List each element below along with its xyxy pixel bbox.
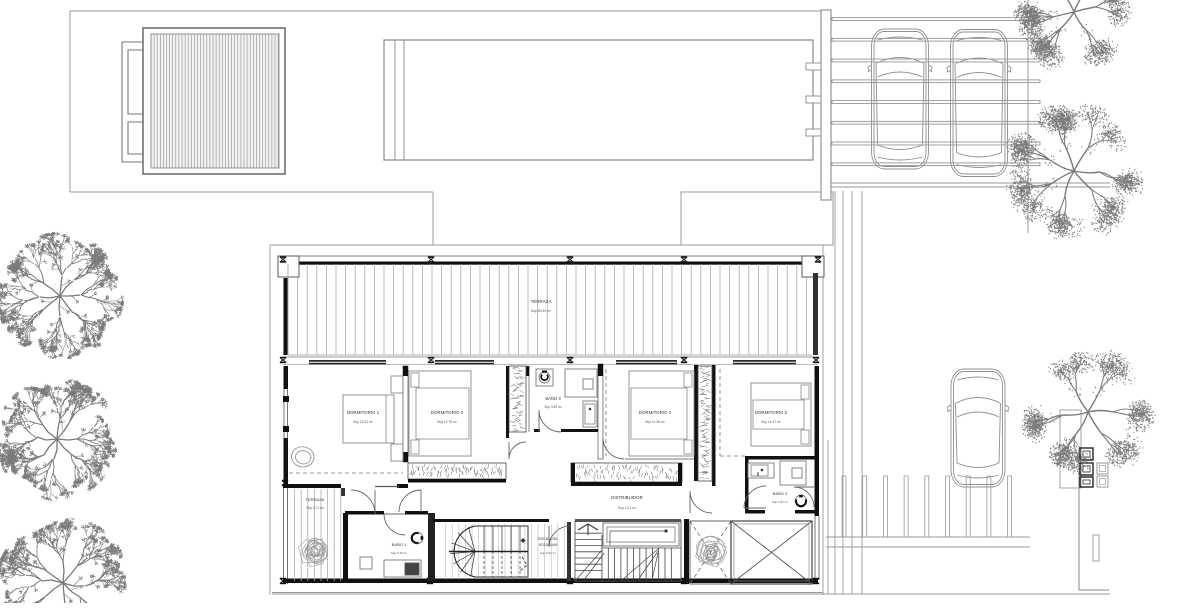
svg-text:Sup 8.22 m²: Sup 8.22 m² (540, 551, 556, 555)
svg-text:DORMITORIO 3: DORMITORIO 3 (431, 410, 464, 415)
svg-text:Sup 5.10 m²: Sup 5.10 m² (391, 551, 407, 555)
svg-text:DORMITORIO 1: DORMITORIO 1 (347, 410, 380, 415)
svg-text:Sup 4.59 m²: Sup 4.59 m² (544, 405, 561, 409)
svg-text:BAÑO 3: BAÑO 3 (545, 396, 561, 401)
svg-text:SOLARIUM: SOLARIUM (539, 543, 558, 547)
svg-text:Sup 3.21 m²: Sup 3.21 m² (618, 506, 637, 510)
svg-text:DORMITORIO 4: DORMITORIO 4 (639, 410, 672, 415)
svg-text:ESCALERA: ESCALERA (538, 537, 558, 541)
svg-text:DISTRIBUIDOR: DISTRIBUIDOR (611, 495, 642, 500)
svg-text:DORMITORIO 2: DORMITORIO 2 (755, 410, 788, 415)
svg-text:Sup 16.47 m²: Sup 16.47 m² (761, 420, 782, 424)
svg-text:TERRAZA: TERRAZA (531, 299, 552, 304)
svg-text:TERRAZA: TERRAZA (306, 497, 325, 502)
svg-text:Sup 12.76 m²: Sup 12.76 m² (437, 420, 458, 424)
svg-text:BAÑO 1: BAÑO 1 (392, 542, 407, 547)
svg-text:Sup 22.41 m²: Sup 22.41 m² (353, 420, 374, 424)
svg-text:BAÑO 2: BAÑO 2 (773, 491, 788, 496)
svg-text:Sup 3.67 m²: Sup 3.67 m² (772, 500, 788, 504)
svg-text:Sup 53.40 m²: Sup 53.40 m² (531, 309, 552, 313)
svg-text:Sup 5.71 m²: Sup 5.71 m² (306, 506, 323, 510)
svg-text:Sup 11.28 m²: Sup 11.28 m² (645, 420, 665, 424)
